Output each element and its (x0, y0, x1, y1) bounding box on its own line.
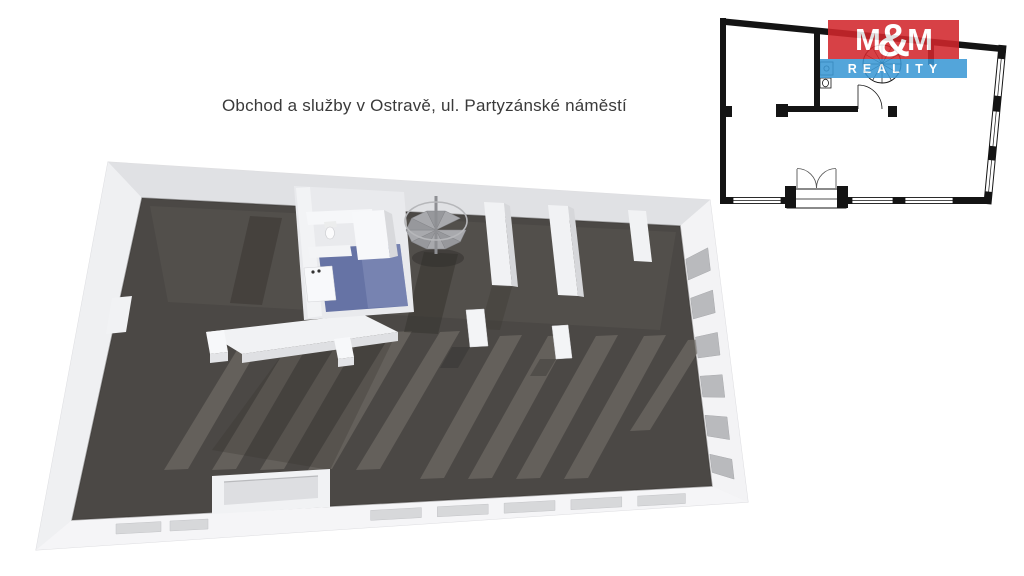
window-pane (170, 519, 208, 531)
plan-column (888, 106, 897, 117)
listing-title: Obchod a služby v Ostravě, ul. Partyzáns… (222, 96, 627, 116)
wc-wall-strip (308, 245, 352, 258)
agency-logo-reality: REALITY (820, 59, 967, 78)
logo-ampersand: & (877, 21, 910, 59)
floorplan-3d-render (36, 162, 748, 550)
plan-wall-chunk (984, 191, 992, 204)
plan-window-mullion (988, 46, 1003, 204)
spiral-staircase (405, 196, 467, 267)
plan-door-jamb (785, 186, 796, 208)
plan-door-jamb (837, 186, 848, 208)
logo-letter-m-right: M (907, 20, 932, 59)
plan-wall-interior-horizontal (776, 106, 858, 112)
plan-door-swing-arc (797, 169, 817, 189)
window-pane (695, 332, 720, 358)
toilet (326, 227, 335, 239)
plan-wall-tick (726, 106, 732, 117)
tap (311, 270, 314, 273)
agency-logo: M&M REALITY (820, 20, 967, 78)
plan-wall-chunk (998, 45, 1006, 59)
plan-wall-end-cap (776, 104, 788, 117)
agency-logo-mark: M&M (828, 20, 959, 59)
stair-base-shadow (412, 249, 464, 267)
window-pane (116, 522, 161, 534)
plan-wall-chunk (988, 146, 996, 161)
tall-cabinet-front (352, 210, 390, 260)
plan-side-window-wall (984, 45, 1006, 204)
listing-image: Obchod a služby v Ostravě, ul. Partyzáns… (0, 0, 1024, 576)
plan-door-swing-arc (858, 85, 882, 109)
plan-wall-chunk (993, 96, 1002, 112)
window-pane (700, 375, 725, 398)
column (466, 309, 488, 347)
plan-interior-door (858, 85, 882, 109)
entrance-recess (212, 469, 330, 514)
sanitary-rooms (294, 186, 414, 320)
plan-wall-left (720, 18, 726, 204)
plan-entrance-door (785, 169, 848, 209)
window-pane (705, 415, 730, 439)
tap (317, 269, 320, 272)
plan-door-swing-arc (817, 169, 837, 189)
floorplan-graphics (0, 0, 1024, 576)
